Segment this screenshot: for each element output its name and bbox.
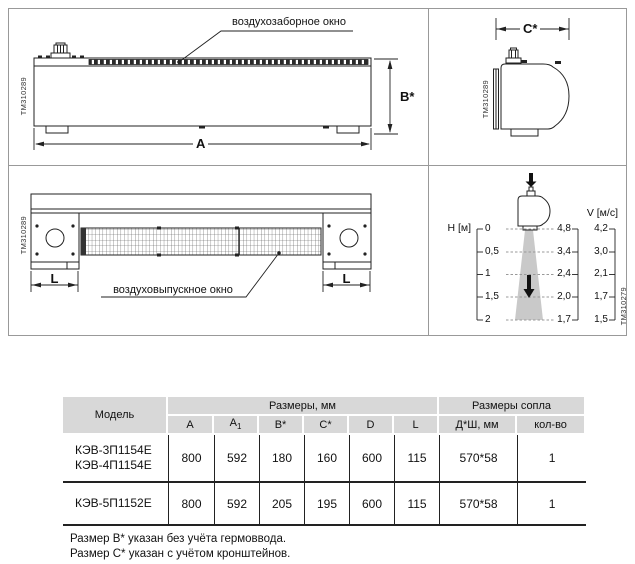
v-axis-label: V [м/с]	[569, 207, 618, 219]
v-center-1: 3,4	[537, 246, 571, 257]
drawings-panel: воздухозаборное окно A B* C* L L воздухо…	[8, 8, 627, 336]
h-tick-4: 2	[485, 314, 491, 325]
header-col-b: B*	[259, 416, 304, 435]
header-nozzle-group: Размеры сопла	[439, 397, 586, 416]
dim-a-label: A	[193, 136, 208, 151]
header-col-a1-sub: 1	[237, 423, 241, 432]
header-col-d: D	[349, 416, 394, 435]
value-a: 800	[168, 435, 214, 483]
v-edge-bracket	[609, 229, 615, 320]
header-col-c: C*	[304, 416, 349, 435]
footnotes: Размер B* указан без учёта гермоввода. Р…	[70, 532, 290, 562]
tm-code-airflow: ТМ310279	[619, 287, 628, 325]
table-row: КЭВ-3П1154Е КЭВ-4П1154Е 800 592 180 160 …	[63, 435, 586, 483]
model-cell: КЭВ-5П1152Е	[63, 483, 168, 526]
v-center-0: 4,8	[537, 223, 571, 234]
tm-code-front: ТМ310289	[19, 77, 28, 115]
h-tick-2: 1	[485, 268, 491, 279]
h-scale-bracket	[477, 229, 483, 320]
value-a: 800	[168, 483, 214, 526]
intake-leader-line	[177, 31, 353, 64]
tm-code-side: ТМ310289	[481, 80, 490, 118]
h-tick-1: 0,5	[485, 246, 499, 257]
h-tick-3: 1,5	[485, 291, 499, 302]
value-count: 1	[517, 435, 586, 483]
cable-gland	[51, 43, 70, 58]
header-col-a: A	[168, 416, 214, 435]
value-l: 115	[394, 435, 439, 483]
value-a1: 592	[214, 483, 259, 526]
outlet-window-label: воздуховыпускное окно	[99, 284, 247, 296]
front-view-drawing	[34, 31, 398, 150]
h-axis-label: H [м]	[437, 222, 471, 234]
intake-window-label: воздухозаборное окно	[209, 16, 369, 28]
header-col-nozzle-size: Д*Ш, мм	[439, 416, 517, 435]
dim-l-left-label: L	[47, 271, 62, 286]
v-center-3: 2,0	[537, 291, 571, 302]
value-a1: 592	[214, 435, 259, 483]
v-edge-3: 1,7	[574, 291, 608, 302]
header-model: Модель	[63, 397, 168, 435]
header-dimensions-group: Размеры, мм	[168, 397, 439, 416]
value-c: 195	[304, 483, 349, 526]
footnote-c: Размер C* указан с учётом кронштейнов.	[70, 547, 290, 562]
header-col-nozzle-count: кол-во	[517, 416, 586, 435]
table-row: КЭВ-5П1152Е 800 592 205 195 600 115 570*…	[63, 483, 586, 526]
model-cell: КЭВ-3П1154Е КЭВ-4П1154Е	[63, 435, 168, 483]
v-edge-0: 4,2	[574, 223, 608, 234]
header-col-a1-base: A	[230, 417, 237, 429]
h-tick-0: 0	[485, 223, 491, 234]
tm-code-bottom: ТМ310289	[19, 216, 28, 254]
v-edge-1: 3,0	[574, 246, 608, 257]
outlet-grille	[81, 227, 321, 257]
value-d: 600	[349, 435, 394, 483]
value-b: 205	[259, 483, 304, 526]
v-edge-4: 1,5	[574, 314, 608, 325]
model-name: КЭВ-5П1152Е	[75, 496, 168, 511]
dim-c-label: C*	[520, 21, 540, 36]
value-d: 600	[349, 483, 394, 526]
value-b: 180	[259, 435, 304, 483]
dimensions-table: Модель Размеры, мм Размеры сопла A A1 B*…	[63, 397, 586, 526]
header-col-a1: A1	[214, 416, 259, 435]
model-name: КЭВ-3П1154Е	[75, 443, 168, 458]
value-l: 115	[394, 483, 439, 526]
header-col-l: L	[394, 416, 439, 435]
dim-b-label: B*	[400, 89, 414, 104]
value-nozzle: 570*58	[439, 435, 517, 483]
dimension-b	[374, 59, 398, 134]
v-center-4: 1,7	[537, 314, 571, 325]
v-edge-2: 2,1	[574, 268, 608, 279]
value-count: 1	[517, 483, 586, 526]
footnote-b: Размер B* указан без учёта гермоввода.	[70, 532, 290, 547]
dim-l-right-label: L	[339, 271, 354, 286]
bottom-view-drawing	[31, 194, 371, 297]
value-c: 160	[304, 435, 349, 483]
value-nozzle: 570*58	[439, 483, 517, 526]
model-name: КЭВ-4П1154Е	[75, 458, 168, 473]
cable-gland-side	[506, 48, 521, 63]
v-center-2: 2,4	[537, 268, 571, 279]
datasheet-page: воздухозаборное окно A B* C* L L воздухо…	[0, 0, 635, 564]
